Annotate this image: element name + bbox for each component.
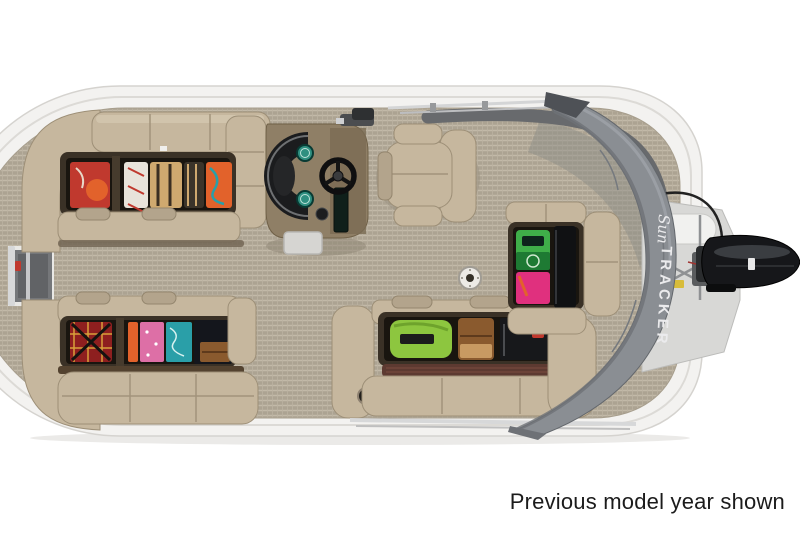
bow-couch-bottom-storage-open bbox=[60, 316, 236, 368]
bow-couch-top-storage-open bbox=[60, 152, 236, 216]
helm-footrest bbox=[284, 232, 322, 254]
outboard-motor bbox=[696, 235, 800, 292]
caption-previous-model-year: Previous model year shown bbox=[510, 489, 785, 515]
aft-side-storage-open bbox=[508, 222, 584, 310]
aft-side-seat bbox=[506, 202, 620, 334]
helm-small-gauge bbox=[316, 208, 328, 220]
bow-couch-top bbox=[22, 110, 270, 252]
stowed-gear bbox=[70, 320, 232, 364]
stowed-gear bbox=[516, 226, 576, 308]
bow-gate bbox=[8, 246, 54, 306]
stowed-gear bbox=[70, 162, 232, 212]
boat-overhead-photo: Sun TRACKER Previous model year shown bbox=[0, 0, 800, 534]
bow-couch-bottom bbox=[22, 292, 258, 430]
brand-script: Sun bbox=[653, 214, 673, 245]
gauge bbox=[297, 145, 313, 161]
gate-latch bbox=[15, 261, 21, 271]
gauge bbox=[297, 191, 313, 207]
helm-console bbox=[264, 108, 374, 256]
pontoon-boat-illustration: Sun TRACKER bbox=[0, 0, 800, 534]
table-base-fitting bbox=[459, 267, 481, 289]
